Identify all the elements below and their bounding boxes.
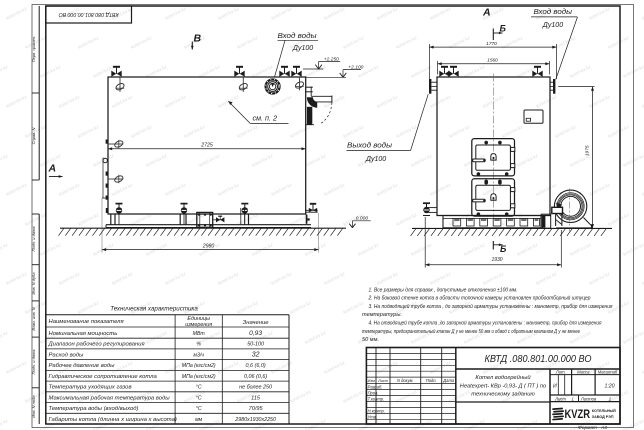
svg-text:kotel-kv.kz: kotel-kv.kz: [323, 271, 346, 287]
svg-text:Масса: Масса: [577, 370, 590, 375]
svg-text:kotel-kv.kz: kotel-kv.kz: [376, 182, 399, 198]
svg-text:kotel-kv.kz: kotel-kv.kz: [111, 182, 134, 198]
svg-text:kotel-kv.kz: kotel-kv.kz: [270, 360, 293, 376]
svg-text:kotel-kv.kz: kotel-kv.kz: [77, 124, 100, 140]
svg-text:kotel-kv.kz: kotel-kv.kz: [463, 242, 486, 258]
svg-text:kotel-kv.kz: kotel-kv.kz: [145, 153, 168, 169]
svg-text:0,6 (6,0): 0,6 (6,0): [246, 363, 266, 369]
svg-text:kotel-kv.kz: kotel-kv.kz: [0, 330, 10, 346]
svg-text:kotel-kv.kz: kotel-kv.kz: [554, 35, 577, 51]
svg-text:kotel-kv.kz: kotel-kv.kz: [164, 271, 187, 287]
svg-text:kotel-kv.kz: kotel-kv.kz: [429, 271, 452, 287]
svg-text:kotel-kv.kz: kotel-kv.kz: [376, 271, 399, 287]
svg-text:м3/ч: м3/ч: [193, 352, 204, 358]
svg-text:kotel-kv.kz: kotel-kv.kz: [607, 35, 630, 51]
svg-text:ЗАВОД РЭП: ЗАВОД РЭП: [592, 415, 614, 419]
svg-text:Инв. N дубл.: Инв. N дубл.: [31, 271, 36, 294]
svg-text:kotel-kv.kz: kotel-kv.kz: [164, 182, 187, 198]
svg-text:МВт: МВт: [193, 331, 206, 337]
svg-text:Ду100: Ду100: [365, 156, 386, 163]
svg-text:kotel-kv.kz: kotel-kv.kz: [77, 212, 100, 228]
svg-text:32: 32: [252, 351, 260, 358]
svg-text:kotel-kv.kz: kotel-kv.kz: [39, 242, 62, 258]
svg-text:2725: 2725: [200, 143, 213, 149]
svg-text:Максимальная рабочая температу: Максимальная рабочая температура воды: [49, 395, 171, 401]
svg-text:kotel-kv.kz: kotel-kv.kz: [58, 271, 81, 287]
svg-text:А3: А3: [600, 425, 607, 430]
svg-text:kotel-kv.kz: kotel-kv.kz: [92, 153, 115, 169]
svg-text:kotel-kv.kz: kotel-kv.kz: [270, 271, 293, 287]
svg-text:МПа (кгс/см2): МПа (кгс/см2): [182, 374, 216, 380]
svg-text:°С: °С: [196, 385, 202, 391]
svg-text:kotel-kv.kz: kotel-kv.kz: [501, 35, 524, 51]
svg-text:Гидравлическое сопротивление к: Гидравлическое сопротивление котла: [49, 374, 158, 380]
svg-text:kotel-kv.kz: kotel-kv.kz: [376, 360, 399, 376]
svg-text:kotel-kv.kz: kotel-kv.kz: [217, 182, 240, 198]
svg-text:4. На отводящей трубе котла ,: 4. На отводящей трубе котла ,до запорной…: [369, 320, 602, 327]
svg-text:kotel-kv.kz: kotel-kv.kz: [289, 389, 312, 405]
svg-text:kotel-kv.kz: kotel-kv.kz: [622, 64, 644, 80]
svg-text:техническому заданию: техническому заданию: [471, 392, 535, 398]
svg-text:не более 250: не более 250: [239, 385, 272, 391]
svg-text:kotel-kv.kz: kotel-kv.kz: [569, 242, 592, 258]
svg-text:kotel-kv.kz: kotel-kv.kz: [395, 124, 418, 140]
svg-text:kotel-kv.kz: kotel-kv.kz: [429, 360, 452, 376]
svg-text:kotel-kv.kz: kotel-kv.kz: [289, 300, 312, 316]
svg-text:%: %: [196, 342, 201, 348]
svg-text:Котел водогрейный: Котел водогрейный: [475, 374, 531, 381]
svg-text:kotel-kv.kz: kotel-kv.kz: [588, 94, 611, 110]
svg-text:3. На подводящей трубе котла: 3. На подводящей трубе котла , до запорн…: [369, 303, 613, 310]
svg-text:kotel-kv.kz: kotel-kv.kz: [217, 271, 240, 287]
svg-text:Вход воды: Вход воды: [278, 32, 318, 40]
svg-text:Подп. и дата: Подп. и дата: [31, 349, 36, 375]
svg-text:Утв.: Утв.: [368, 414, 377, 419]
svg-text:kotel-kv.kz: kotel-kv.kz: [516, 153, 539, 169]
svg-text:kotel-kv.kz: kotel-kv.kz: [482, 271, 505, 287]
svg-text:kotel-kv.kz: kotel-kv.kz: [58, 182, 81, 198]
svg-text:1: 1: [572, 397, 574, 402]
svg-text:Наименование показателя: Наименование показателя: [49, 319, 125, 325]
svg-text:1. Все размеры для справок ,: 1. Все размеры для справок , допустимые …: [369, 287, 518, 293]
svg-text:Справ. N: Справ. N: [31, 128, 36, 145]
svg-text:Н.контр.: Н.контр.: [368, 408, 385, 413]
svg-text:kotel-kv.kz: kotel-kv.kz: [289, 124, 312, 140]
svg-text:kotel-kv.kz: kotel-kv.kz: [58, 94, 81, 110]
svg-text:Температура воды (вход/выход): Температура воды (вход/выход): [49, 406, 139, 412]
svg-text:kotel-kv.kz: kotel-kv.kz: [607, 212, 630, 228]
svg-text:температуры.: температуры.: [362, 312, 402, 318]
svg-text:Техническая характеристика: Техническая характеристика: [110, 305, 198, 312]
svg-text:kotel-kv.kz: kotel-kv.kz: [5, 94, 28, 110]
svg-text:kotel-kv.kz: kotel-kv.kz: [111, 271, 134, 287]
svg-text:kotel-kv.kz: kotel-kv.kz: [342, 35, 365, 51]
svg-text:0,06 (0,6): 0,06 (0,6): [244, 374, 267, 380]
svg-text:1770: 1770: [486, 41, 497, 47]
svg-text:kotel-kv.kz: kotel-kv.kz: [395, 389, 418, 405]
svg-text:kotel-kv.kz: kotel-kv.kz: [111, 94, 134, 110]
svg-text:Подп. и дата: Подп. и дата: [31, 226, 36, 252]
svg-text:kotel-kv.kz: kotel-kv.kz: [130, 124, 153, 140]
svg-text:Ду100: Ду100: [292, 45, 313, 52]
svg-text:kotel-kv.kz: kotel-kv.kz: [164, 6, 187, 22]
svg-text:kotel-kv.kz: kotel-kv.kz: [77, 35, 100, 51]
svg-text:И: И: [553, 384, 557, 390]
svg-text:Б: Б: [500, 244, 507, 254]
svg-text:Разраб.: Разраб.: [368, 384, 383, 389]
svg-text:Подп.: Подп.: [426, 378, 437, 383]
svg-text:Лист: Лист: [554, 397, 566, 402]
svg-text:2. На боковой стенке котла в: 2. На боковой стенке котла в области топ…: [368, 295, 591, 302]
svg-text:+2.250: +2.250: [324, 56, 339, 62]
svg-text:Перв. примен.: Перв. примен.: [31, 36, 36, 63]
svg-text:kotel-kv.kz: kotel-kv.kz: [588, 182, 611, 198]
svg-text:Ду100: Ду100: [542, 22, 563, 29]
svg-text:kotel-kv.kz: kotel-kv.kz: [304, 153, 327, 169]
svg-text:kotel-kv.kz: kotel-kv.kz: [410, 242, 433, 258]
svg-text:kotel-kv.kz: kotel-kv.kz: [39, 64, 62, 80]
svg-text:kotel-kv.kz: kotel-kv.kz: [342, 389, 365, 405]
svg-text:Т.контр.: Т.контр.: [368, 396, 385, 401]
svg-text:kotel-kv.kz: kotel-kv.kz: [236, 300, 259, 316]
svg-text:kotel-kv.kz: kotel-kv.kz: [304, 330, 327, 346]
svg-text:Пров.: Пров.: [368, 390, 379, 395]
svg-text:2980: 2980: [202, 243, 215, 249]
svg-text:Рабочее давление воды: Рабочее давление воды: [49, 363, 116, 369]
svg-text:kotel-kv.kz: kotel-kv.kz: [0, 242, 10, 258]
svg-text:Изм: Изм: [368, 379, 375, 383]
svg-text:kotel-kv.kz: kotel-kv.kz: [236, 124, 259, 140]
svg-text:kotel-kv.kz: kotel-kv.kz: [236, 35, 259, 51]
svg-text:1560: 1560: [487, 58, 498, 64]
svg-text:А: А: [482, 7, 491, 19]
svg-text:Вход воды: Вход воды: [534, 8, 573, 16]
svg-text:kotel-kv.kz: kotel-kv.kz: [323, 6, 346, 22]
svg-text:50-100: 50-100: [247, 342, 264, 348]
svg-text:Дата: Дата: [442, 378, 455, 383]
svg-text:Лист: Лист: [377, 379, 388, 383]
svg-text:Выход воды: Выход воды: [347, 141, 393, 149]
svg-text:+2.100: +2.100: [348, 65, 363, 71]
svg-text:KVZR: KVZR: [565, 409, 591, 421]
svg-text:kotel-kv.kz: kotel-kv.kz: [323, 182, 346, 198]
svg-text:kotel-kv.kz: kotel-kv.kz: [622, 242, 644, 258]
svg-text:Инв. N подл.: Инв. N подл.: [31, 394, 36, 417]
svg-text:мм: мм: [195, 417, 203, 423]
svg-text:115: 115: [251, 395, 261, 401]
svg-text:kotel-kv.kz: kotel-kv.kz: [376, 94, 399, 110]
svg-text:kotel-kv.kz: kotel-kv.kz: [164, 94, 187, 110]
svg-text:kotel-kv.kz: kotel-kv.kz: [217, 360, 240, 376]
svg-text:kotel-kv.kz: kotel-kv.kz: [535, 271, 558, 287]
svg-text:МПа (кгс/см2): МПа (кгс/см2): [182, 363, 216, 369]
svg-text:°С: °С: [196, 406, 202, 412]
svg-text:Heatexpert- КВр -0,93- Д ( ПТ: Heatexpert- КВр -0,93- Д ( ПТ ) по: [460, 383, 546, 389]
svg-text:см. п. 2: см. п. 2: [253, 114, 277, 123]
svg-text:kotel-kv.kz: kotel-kv.kz: [270, 182, 293, 198]
svg-text:kotel-kv.kz: kotel-kv.kz: [516, 242, 539, 258]
svg-text:N докум.: N докум.: [397, 378, 414, 383]
svg-text:70/95: 70/95: [249, 406, 264, 412]
svg-text:kotel-kv.kz: kotel-kv.kz: [429, 6, 452, 22]
svg-text:1:20: 1:20: [604, 384, 614, 390]
svg-text:kotel-kv.kz: kotel-kv.kz: [217, 6, 240, 22]
svg-text:А: А: [48, 163, 57, 175]
svg-text:Диапазон рабочего регулировани: Диапазон рабочего регулирования: [48, 342, 146, 348]
svg-text:kotel-kv.kz: kotel-kv.kz: [376, 6, 399, 22]
svg-text:Габариты котла (длинна х ширин: Габариты котла (длинна х ширина х высота…: [49, 417, 177, 423]
svg-text:kotel-kv.kz: kotel-kv.kz: [0, 64, 10, 80]
svg-text:Расход воды: Расход воды: [49, 352, 85, 358]
svg-text:Номинальная мощность: Номинальная мощность: [49, 331, 118, 337]
svg-text:kotel-kv.kz: kotel-kv.kz: [554, 124, 577, 140]
svg-text:температуры, предохранительный: температуры, предохранительный клапан Д …: [362, 328, 580, 335]
svg-text:kotel-kv.kz: kotel-kv.kz: [569, 64, 592, 80]
svg-text:kotel-kv.kz: kotel-kv.kz: [357, 242, 380, 258]
svg-text:КВТД.080.801.00.000 ВО: КВТД.080.801.00.000 ВО: [58, 11, 119, 17]
svg-text:kotel-kv.kz: kotel-kv.kz: [622, 330, 644, 346]
svg-text:kotel-kv.kz: kotel-kv.kz: [482, 94, 505, 110]
svg-text:kotel-kv.kz: kotel-kv.kz: [588, 271, 611, 287]
svg-text:1975: 1975: [585, 145, 591, 156]
svg-text:kotel-kv.kz: kotel-kv.kz: [183, 124, 206, 140]
svg-text:Лит.: Лит.: [555, 370, 566, 375]
svg-text:измерения: измерения: [185, 322, 212, 328]
svg-text:kotel-kv.kz: kotel-kv.kz: [429, 94, 452, 110]
svg-text:kotel-kv.kz: kotel-kv.kz: [323, 360, 346, 376]
svg-text:kotel-kv.kz: kotel-kv.kz: [395, 212, 418, 228]
svg-text:2980х1930х2250: 2980х1930х2250: [234, 417, 276, 423]
svg-text:kotel-kv.kz: kotel-kv.kz: [342, 124, 365, 140]
svg-text:kotel-kv.kz: kotel-kv.kz: [0, 153, 10, 169]
svg-text:Масштаб: Масштаб: [598, 370, 618, 375]
svg-text:Листов: Листов: [580, 397, 597, 402]
svg-text:1930: 1930: [491, 257, 502, 263]
svg-text:kotel-kv.kz: kotel-kv.kz: [622, 153, 644, 169]
svg-text:kotel-kv.kz: kotel-kv.kz: [5, 6, 28, 22]
svg-text:kotel-kv.kz: kotel-kv.kz: [410, 64, 433, 80]
svg-text:kotel-kv.kz: kotel-kv.kz: [448, 124, 471, 140]
svg-text:kotel-kv.kz: kotel-kv.kz: [410, 153, 433, 169]
svg-text:kotel-kv.kz: kotel-kv.kz: [429, 182, 452, 198]
svg-text:Температура уходящих газов: Температура уходящих газов: [49, 385, 132, 391]
svg-text:kotel-kv.kz: kotel-kv.kz: [448, 35, 471, 51]
svg-text:КВТД .080.801.00.000 ВО: КВТД .080.801.00.000 ВО: [485, 354, 592, 365]
svg-text:kotel-kv.kz: kotel-kv.kz: [5, 271, 28, 287]
svg-text:kotel-kv.kz: kotel-kv.kz: [395, 35, 418, 51]
svg-text:°С: °С: [196, 395, 202, 401]
svg-text:Формат: Формат: [578, 425, 597, 430]
svg-text:50 мм.: 50 мм.: [362, 337, 379, 343]
svg-text:kotel-kv.kz: kotel-kv.kz: [5, 182, 28, 198]
svg-text:kotel-kv.kz: kotel-kv.kz: [270, 94, 293, 110]
svg-text:kotel-kv.kz: kotel-kv.kz: [501, 124, 524, 140]
svg-text:kotel-kv.kz: kotel-kv.kz: [5, 360, 28, 376]
svg-text:Значение: Значение: [243, 320, 270, 326]
svg-text:kotel-kv.kz: kotel-kv.kz: [535, 94, 558, 110]
svg-text:kotel-kv.kz: kotel-kv.kz: [251, 153, 274, 169]
svg-text:Взам. инв. N: Взам. инв. N: [31, 307, 36, 330]
svg-text:0,93: 0,93: [249, 330, 262, 337]
svg-text:kotel-kv.kz: kotel-kv.kz: [0, 418, 10, 430]
svg-text:kotel-kv.kz: kotel-kv.kz: [130, 35, 153, 51]
svg-text:kotel-kv.kz: kotel-kv.kz: [588, 6, 611, 22]
svg-text:kotel-kv.kz: kotel-kv.kz: [622, 418, 644, 430]
svg-text:kotel-kv.kz: kotel-kv.kz: [270, 6, 293, 22]
svg-text:Б: Б: [500, 24, 507, 34]
svg-text:В: В: [194, 33, 202, 45]
svg-text:0.000: 0.000: [356, 215, 369, 221]
svg-text:kotel-kv.kz: kotel-kv.kz: [607, 124, 630, 140]
svg-text:kotel-kv.kz: kotel-kv.kz: [198, 153, 221, 169]
svg-text:kotel-kv.kz: kotel-kv.kz: [535, 182, 558, 198]
svg-text:kotel-kv.kz: kotel-kv.kz: [77, 300, 100, 316]
svg-text:КОТЕЛЬНЫЙ: КОТЕЛЬНЫЙ: [592, 409, 616, 413]
